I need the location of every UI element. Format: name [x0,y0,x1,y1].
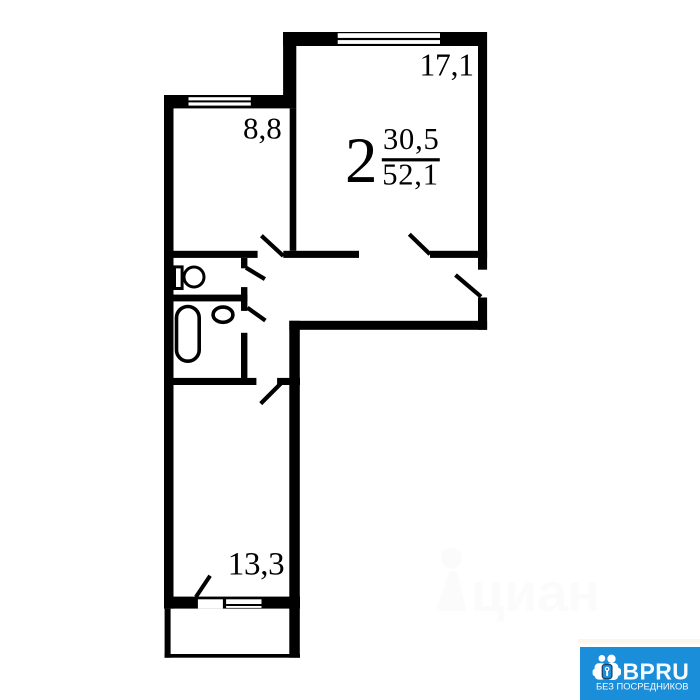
svg-text:циан: циан [471,563,600,623]
svg-text:17,1: 17,1 [420,48,474,83]
svg-text:52,1: 52,1 [382,158,439,192]
svg-text:2: 2 [345,125,378,197]
svg-text:13,3: 13,3 [228,546,285,582]
svg-text:30,5: 30,5 [383,122,440,156]
svg-text:БЕЗ ПОСРЕДНИКОВ: БЕЗ ПОСРЕДНИКОВ [596,680,689,691]
svg-text:8,8: 8,8 [243,110,282,145]
